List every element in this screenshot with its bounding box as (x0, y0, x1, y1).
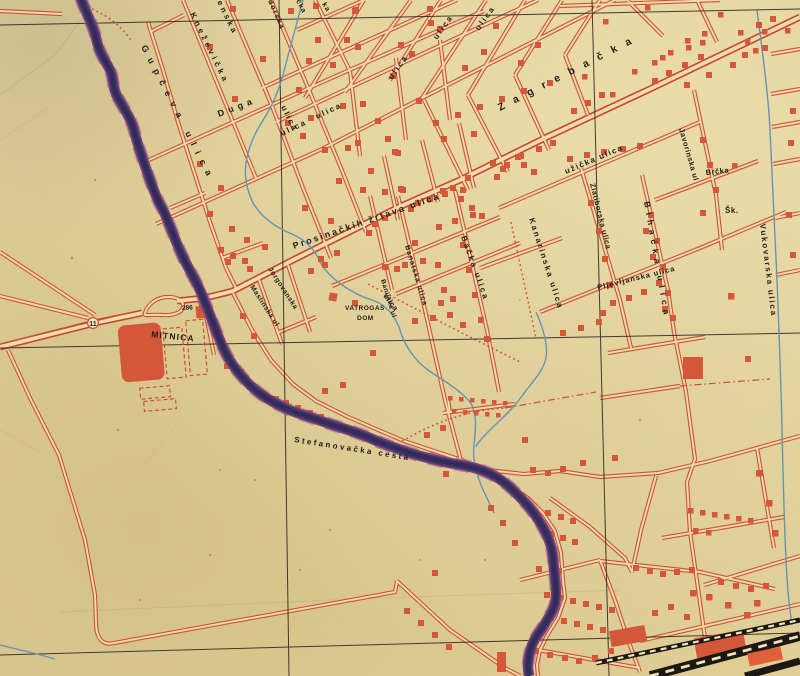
svg-text:VATROGAS: VATROGAS (345, 305, 385, 312)
svg-text:286: 286 (182, 304, 194, 312)
svg-text:Šk.: Šk. (725, 206, 739, 215)
svg-text:DOM: DOM (357, 315, 374, 322)
svg-text:11: 11 (89, 321, 97, 328)
